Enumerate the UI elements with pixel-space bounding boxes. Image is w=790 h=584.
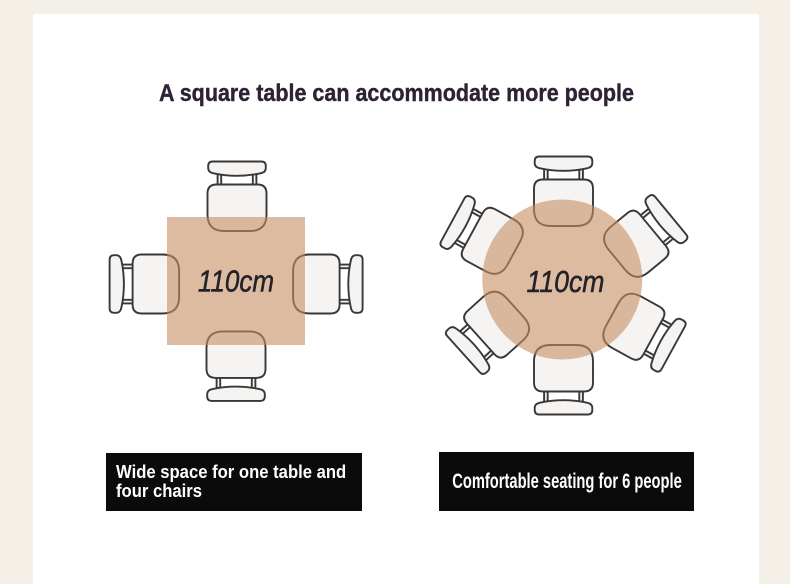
svg-text:110cm: 110cm — [198, 264, 274, 299]
svg-text:110cm: 110cm — [526, 265, 604, 299]
